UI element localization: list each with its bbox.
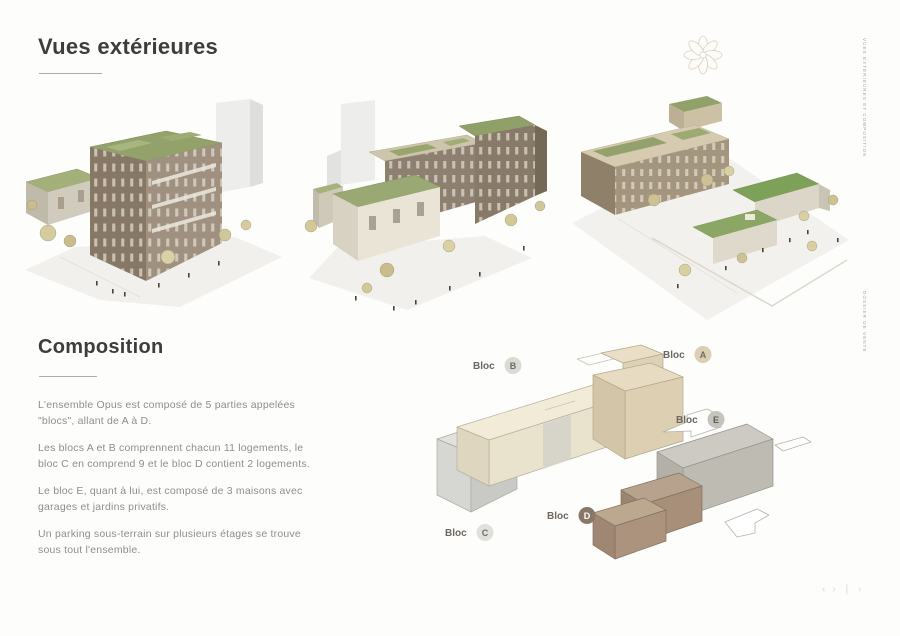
svg-text:A: A xyxy=(700,350,707,360)
bloc-d-volume xyxy=(593,473,702,559)
background-white-tower xyxy=(216,99,263,193)
page-navigation: ‹ › ❘ › xyxy=(822,584,861,595)
blocks-exploded-diagram: Bloc B Bloc A Bloc E Bloc D Bloc xyxy=(425,337,870,599)
background-white-tower xyxy=(327,100,375,188)
vertical-section-label: VUES EXTÉRIEURES ET COMPOSITION xyxy=(862,38,867,158)
svg-text:Bloc: Bloc xyxy=(676,415,698,426)
svg-text:E: E xyxy=(713,415,719,425)
exterior-rendering-2 xyxy=(297,88,562,323)
svg-text:Bloc: Bloc xyxy=(473,361,495,372)
paragraph: Le bloc E, quant à lui, est composé de 3… xyxy=(38,484,310,516)
paragraph: L'ensemble Opus est composé de 5 parties… xyxy=(38,398,310,430)
pager-divider-icon: ❘ xyxy=(843,584,851,595)
exterior-rendering-3 xyxy=(557,88,857,338)
section-title-composition: Composition xyxy=(38,336,164,359)
pager-next-icon[interactable]: › xyxy=(832,584,835,595)
exterior-rendering-1 xyxy=(20,85,305,315)
section-title-vues-exterieures: Vues extérieures xyxy=(38,34,218,60)
pager-prev-icon[interactable]: ‹ xyxy=(822,584,825,595)
paragraph: Un parking sous-terrain sur plusieurs ét… xyxy=(38,527,310,559)
svg-text:D: D xyxy=(584,511,591,521)
annex-building xyxy=(26,169,99,225)
bloc-c-label: Bloc C xyxy=(445,524,494,541)
composition-text: L'ensemble Opus est composé de 5 parties… xyxy=(38,398,310,570)
bloc-a-label: Bloc A xyxy=(663,346,712,363)
svg-text:B: B xyxy=(510,361,517,371)
svg-text:Bloc: Bloc xyxy=(663,350,685,361)
svg-text:Bloc: Bloc xyxy=(445,528,467,539)
rosette-ornament-icon xyxy=(680,31,726,77)
svg-text:C: C xyxy=(482,528,489,538)
title-underline xyxy=(39,376,97,377)
bloc-d-label: Bloc D xyxy=(547,507,596,524)
svg-text:Bloc: Bloc xyxy=(547,511,569,522)
title-underline xyxy=(39,73,102,74)
pager-last-icon[interactable]: › xyxy=(858,584,861,595)
bloc-b-label: Bloc B xyxy=(473,357,522,374)
paragraph: Les blocs A et B comprennent chacun 11 l… xyxy=(38,441,310,473)
